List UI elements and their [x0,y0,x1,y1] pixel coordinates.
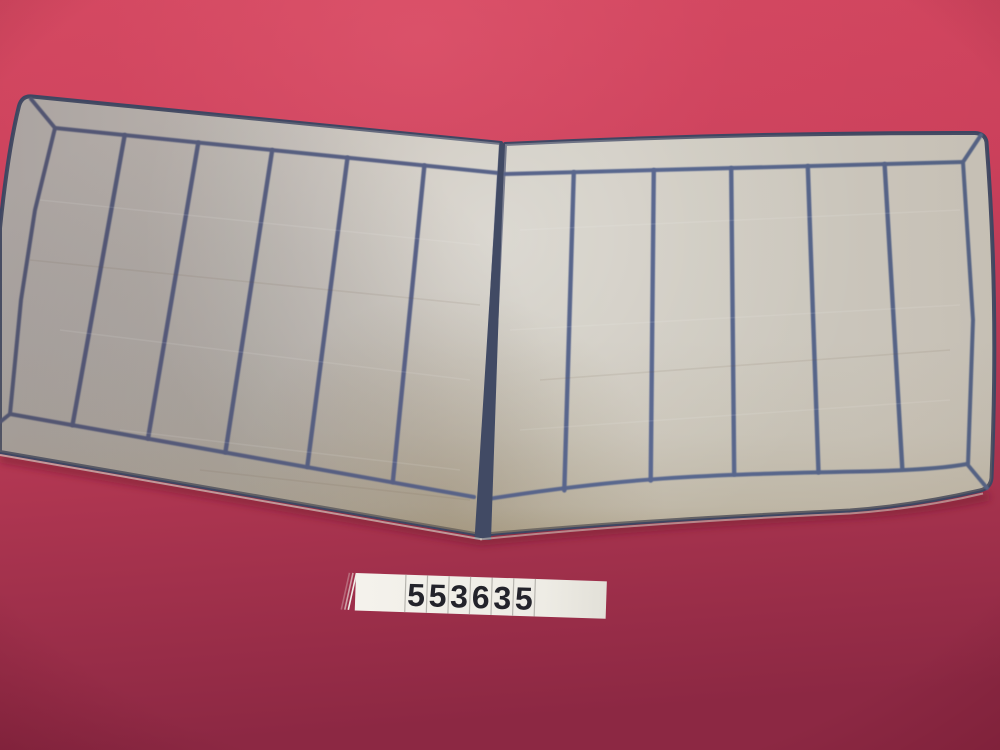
svg-text:5: 5 [428,577,447,614]
svg-text:5: 5 [514,580,533,617]
svg-text:6: 6 [471,579,490,616]
svg-text:3: 3 [493,580,512,617]
svg-text:3: 3 [450,578,469,615]
svg-text:5: 5 [407,577,426,614]
